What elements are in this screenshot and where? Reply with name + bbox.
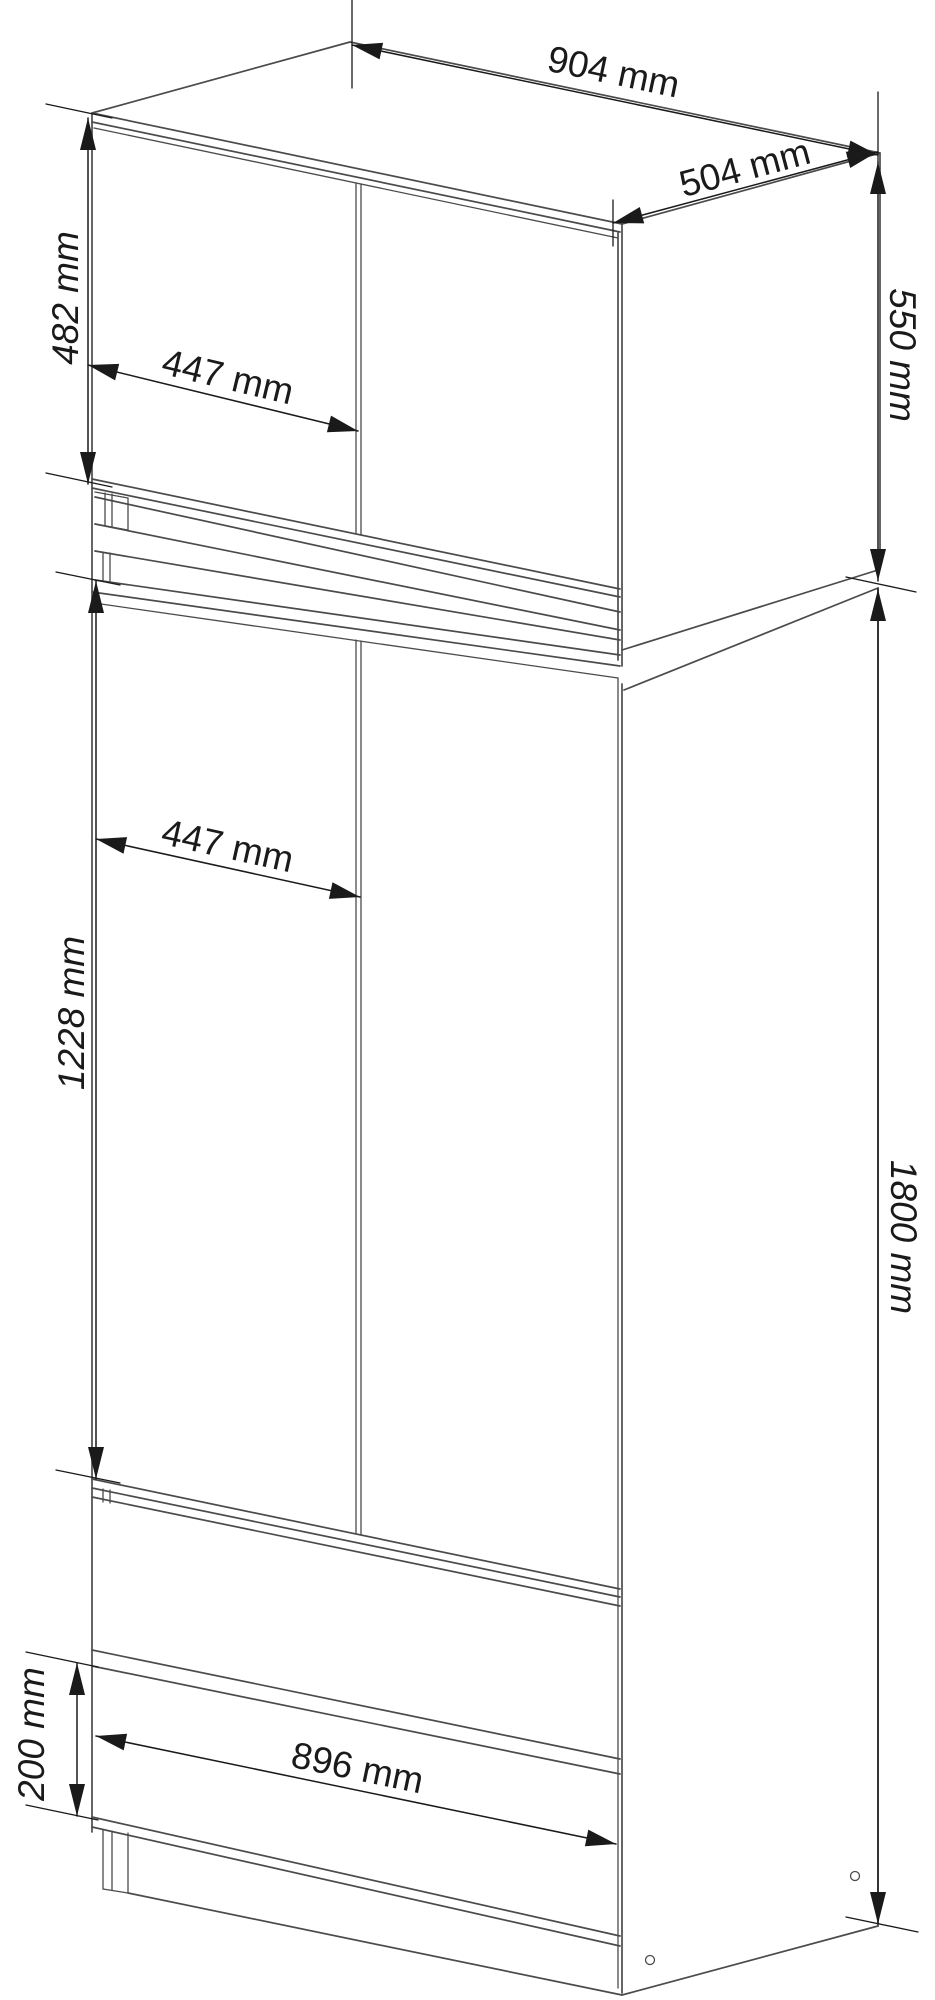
dimension-drawer-width: 896 mm [96,1734,616,1846]
left-leg-lines [103,1830,128,1893]
extension-line-bottom [26,1805,98,1820]
dimension-label-482: 482 mm [45,231,86,365]
dimension-top-door-width: 447 mm [88,341,358,432]
cam-lock-hole-2 [851,1872,860,1881]
furniture-dimension-diagram: 904 mm 504 mm 482 mm 447 mm 550 mm [0,0,935,2000]
left-leg-bottom [103,1889,128,1893]
side-top-edge [624,588,878,690]
arrowhead-right [327,416,358,433]
dimension-label-904: 904 mm [544,38,683,105]
rail-b-cap-lines [103,552,110,582]
bottom-front-edge [128,1893,622,1995]
drawer-section [92,1488,620,1946]
base-front-edge [92,1827,620,1946]
drawer1-bottom-edge [92,1650,620,1759]
dimension-label-1800: 1800 mm [883,1160,924,1314]
arrowhead-bottom [870,1892,886,1924]
arrowhead-bottom [88,1447,104,1479]
dimension-label-550: 550 mm [882,288,923,422]
arrowhead-left [96,1734,127,1751]
extension-line-bottom [46,473,112,487]
dimension-top-section-height: 550 mm [846,162,923,592]
cam-lock-hole [646,1956,655,1965]
rail-a-cap-lines [105,493,112,527]
extension-line-bottom [846,577,916,592]
base-legs [103,1830,878,1995]
dimension-depth: 504 mm [613,131,877,246]
arrowhead-top [88,581,104,613]
arrowhead-left [96,837,127,854]
arrowhead-back [846,152,877,168]
bottom-side-edge [622,1926,878,1995]
arrowhead-top [69,1663,85,1695]
dimension-top-door-height: 482 mm [45,104,112,487]
drawer2-bottom-edge [92,1817,620,1936]
extension-line-bottom [56,1470,120,1483]
dimension-label-1228: 1228 mm [51,936,92,1090]
arrowhead-right [329,882,360,899]
arrowhead-bottom [870,549,886,581]
arrowhead-bottom [69,1784,85,1816]
dimension-door-height: 1228 mm [51,572,120,1483]
arrowhead-top [870,589,886,621]
dimension-label-447-top: 447 mm [158,341,298,412]
arrowhead-left [352,43,383,60]
diagram-canvas: 904 mm 504 mm 482 mm 447 mm 550 mm [0,0,935,2000]
arrowhead-front [613,207,644,223]
cabinet-side-bottom-edge [622,570,878,650]
dimension-drawer-height: 200 mm [11,1652,98,1820]
arrowhead-top [870,162,886,194]
dimension-label-504: 504 mm [675,131,815,205]
rail-b-bottom-edge [95,580,620,655]
extension-line-bottom [846,1917,918,1932]
dimension-door-width: 447 mm [96,811,360,899]
extension-line-top [26,1652,98,1667]
dimension-label-896: 896 mm [288,1734,427,1801]
dimension-label-200: 200 mm [11,1667,52,1802]
dimension-wardrobe-height: 1800 mm [846,589,924,1932]
top-face-outline [92,42,880,224]
arrowhead-right [585,1830,616,1847]
dimension-label-447-main: 447 mm [158,811,297,880]
